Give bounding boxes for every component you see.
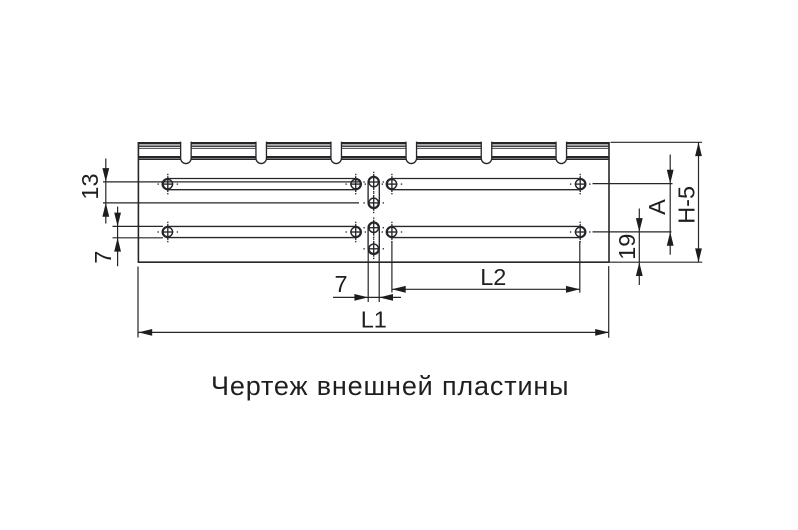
svg-text:L1: L1 xyxy=(361,307,387,333)
svg-text:Чертеж внешней пластины: Чертеж внешней пластины xyxy=(211,371,569,401)
svg-text:L2: L2 xyxy=(480,264,506,290)
svg-text:A: A xyxy=(644,199,670,215)
svg-text:19: 19 xyxy=(614,234,640,260)
svg-text:7: 7 xyxy=(335,271,348,297)
svg-text:7: 7 xyxy=(90,251,116,264)
svg-text:13: 13 xyxy=(77,173,103,199)
svg-text:H-5: H-5 xyxy=(673,186,699,224)
